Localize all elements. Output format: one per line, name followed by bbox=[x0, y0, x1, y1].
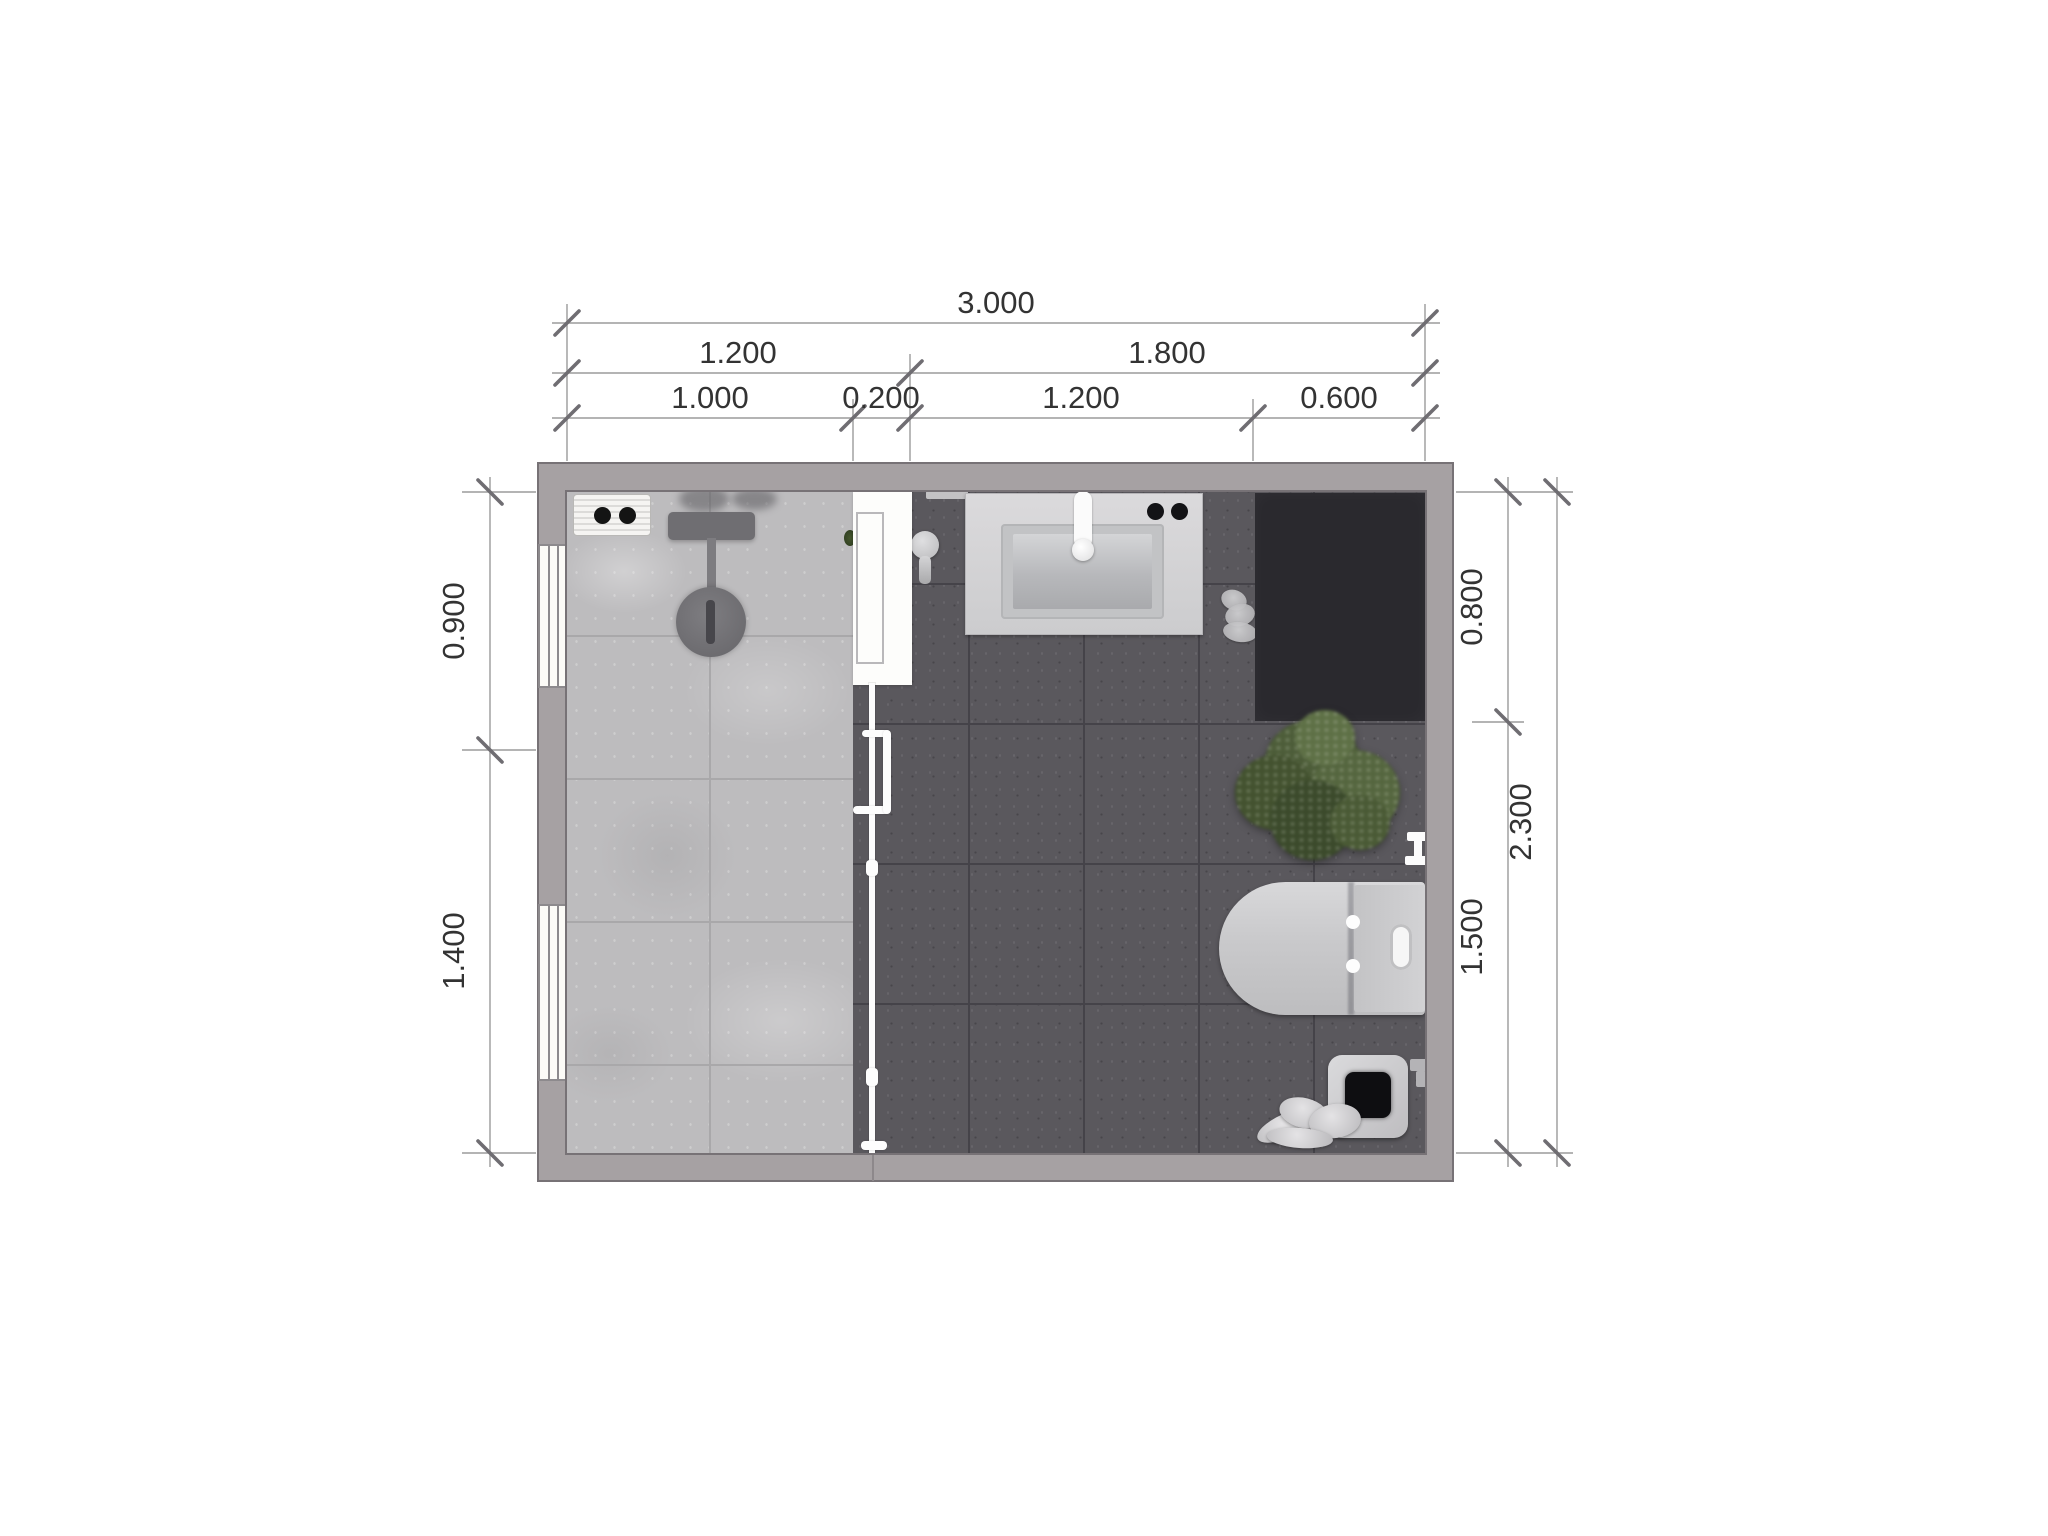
dim-tick bbox=[1413, 311, 1437, 335]
squeegee-handle bbox=[919, 556, 931, 584]
dim-tick bbox=[555, 361, 579, 385]
dim-tick bbox=[555, 406, 579, 430]
glass-partition-outline bbox=[856, 512, 884, 664]
squeegee-icon bbox=[911, 531, 939, 559]
toilet-seat-hinge bbox=[1346, 959, 1360, 973]
floor-plan-canvas: 3.000 1.200 1.800 1.000 0.200 1.200 0.60… bbox=[0, 0, 2048, 1536]
top-dimension-chain: 3.000 1.200 1.800 1.000 0.200 1.200 0.60… bbox=[552, 285, 1440, 461]
dim-label-lower-left-height: 1.400 bbox=[436, 912, 471, 990]
shower-control-panel-icon bbox=[573, 494, 651, 536]
window-icon bbox=[538, 544, 567, 688]
tile-joint bbox=[567, 778, 853, 780]
tile-joint bbox=[567, 921, 853, 923]
dim-tick bbox=[1545, 1141, 1569, 1165]
vanity-control-dot bbox=[1171, 503, 1188, 520]
wall-shelf-icon bbox=[926, 491, 968, 499]
dim-label-right-span: 1.800 bbox=[1128, 335, 1206, 370]
toilet-seat-hinge bbox=[1346, 915, 1360, 929]
dim-tick bbox=[898, 406, 922, 430]
potted-plant-icon bbox=[1235, 710, 1405, 865]
shower-knob-icon bbox=[619, 507, 636, 524]
wall-bracket-icon bbox=[1410, 1059, 1427, 1071]
dim-label-left-span: 1.200 bbox=[699, 335, 777, 370]
plant-foliage bbox=[1330, 795, 1390, 850]
window-pane-line bbox=[548, 906, 550, 1079]
door-roller bbox=[866, 1068, 878, 1086]
bathroom-room bbox=[565, 490, 1427, 1155]
door-end-cap bbox=[861, 1141, 887, 1150]
dim-tick bbox=[478, 480, 502, 504]
flush-plate-icon bbox=[1390, 924, 1412, 970]
shower-knob-icon bbox=[594, 507, 611, 524]
dim-tick bbox=[1496, 710, 1520, 734]
washbasin-vanity-icon bbox=[965, 493, 1203, 635]
dim-tick bbox=[478, 1141, 502, 1165]
dim-tick bbox=[841, 406, 865, 430]
wall-joint-line bbox=[872, 1155, 874, 1181]
window-pane-line bbox=[557, 546, 559, 686]
glass-partition-icon bbox=[853, 492, 912, 685]
dim-tick bbox=[1413, 361, 1437, 385]
dim-label-upper-left-height: 0.900 bbox=[436, 582, 471, 660]
plant-foliage bbox=[1295, 710, 1355, 765]
dim-tick bbox=[1413, 406, 1437, 430]
dim-tick bbox=[898, 361, 922, 385]
wall-bracket-icon bbox=[1416, 1071, 1426, 1087]
door-handle-icon bbox=[883, 730, 891, 814]
shower-rail-icon bbox=[668, 512, 755, 540]
window-pane-line bbox=[548, 546, 550, 686]
dim-tick bbox=[1545, 480, 1569, 504]
dim-tick bbox=[1496, 1141, 1520, 1165]
dim-tick bbox=[1496, 480, 1520, 504]
window-icon bbox=[538, 904, 567, 1081]
right-dimension-chain: 0.800 1.500 2.300 bbox=[1454, 477, 1573, 1167]
storage-unit-icon bbox=[1255, 493, 1425, 721]
window-pane-line bbox=[557, 906, 559, 1079]
dim-label-toilet-zone-height: 1.500 bbox=[1454, 898, 1489, 976]
dim-tick bbox=[1241, 406, 1265, 430]
toilet-icon bbox=[1219, 882, 1425, 1015]
dim-label-total-width: 3.000 bbox=[957, 285, 1035, 320]
dim-tick bbox=[555, 311, 579, 335]
vanity-control-dot bbox=[1147, 503, 1164, 520]
tile-joint bbox=[567, 1064, 853, 1066]
dim-label-total-height: 2.300 bbox=[1503, 783, 1538, 861]
shower-head-handle bbox=[706, 600, 715, 644]
door-roller bbox=[866, 860, 878, 876]
faucet-knob bbox=[1072, 539, 1094, 561]
toilet-paper-holder-icon bbox=[1405, 856, 1427, 865]
dim-label-cabinet-height: 0.800 bbox=[1454, 568, 1489, 646]
dim-label-cabinet-width: 0.600 bbox=[1300, 380, 1378, 415]
left-dimension-chain: 0.900 1.400 bbox=[436, 477, 536, 1167]
dim-label-vanity-zone-width: 1.200 bbox=[1042, 380, 1120, 415]
dim-label-partition-width: 0.200 bbox=[842, 380, 920, 415]
dim-tick bbox=[478, 738, 502, 762]
dim-label-shower-width: 1.000 bbox=[671, 380, 749, 415]
